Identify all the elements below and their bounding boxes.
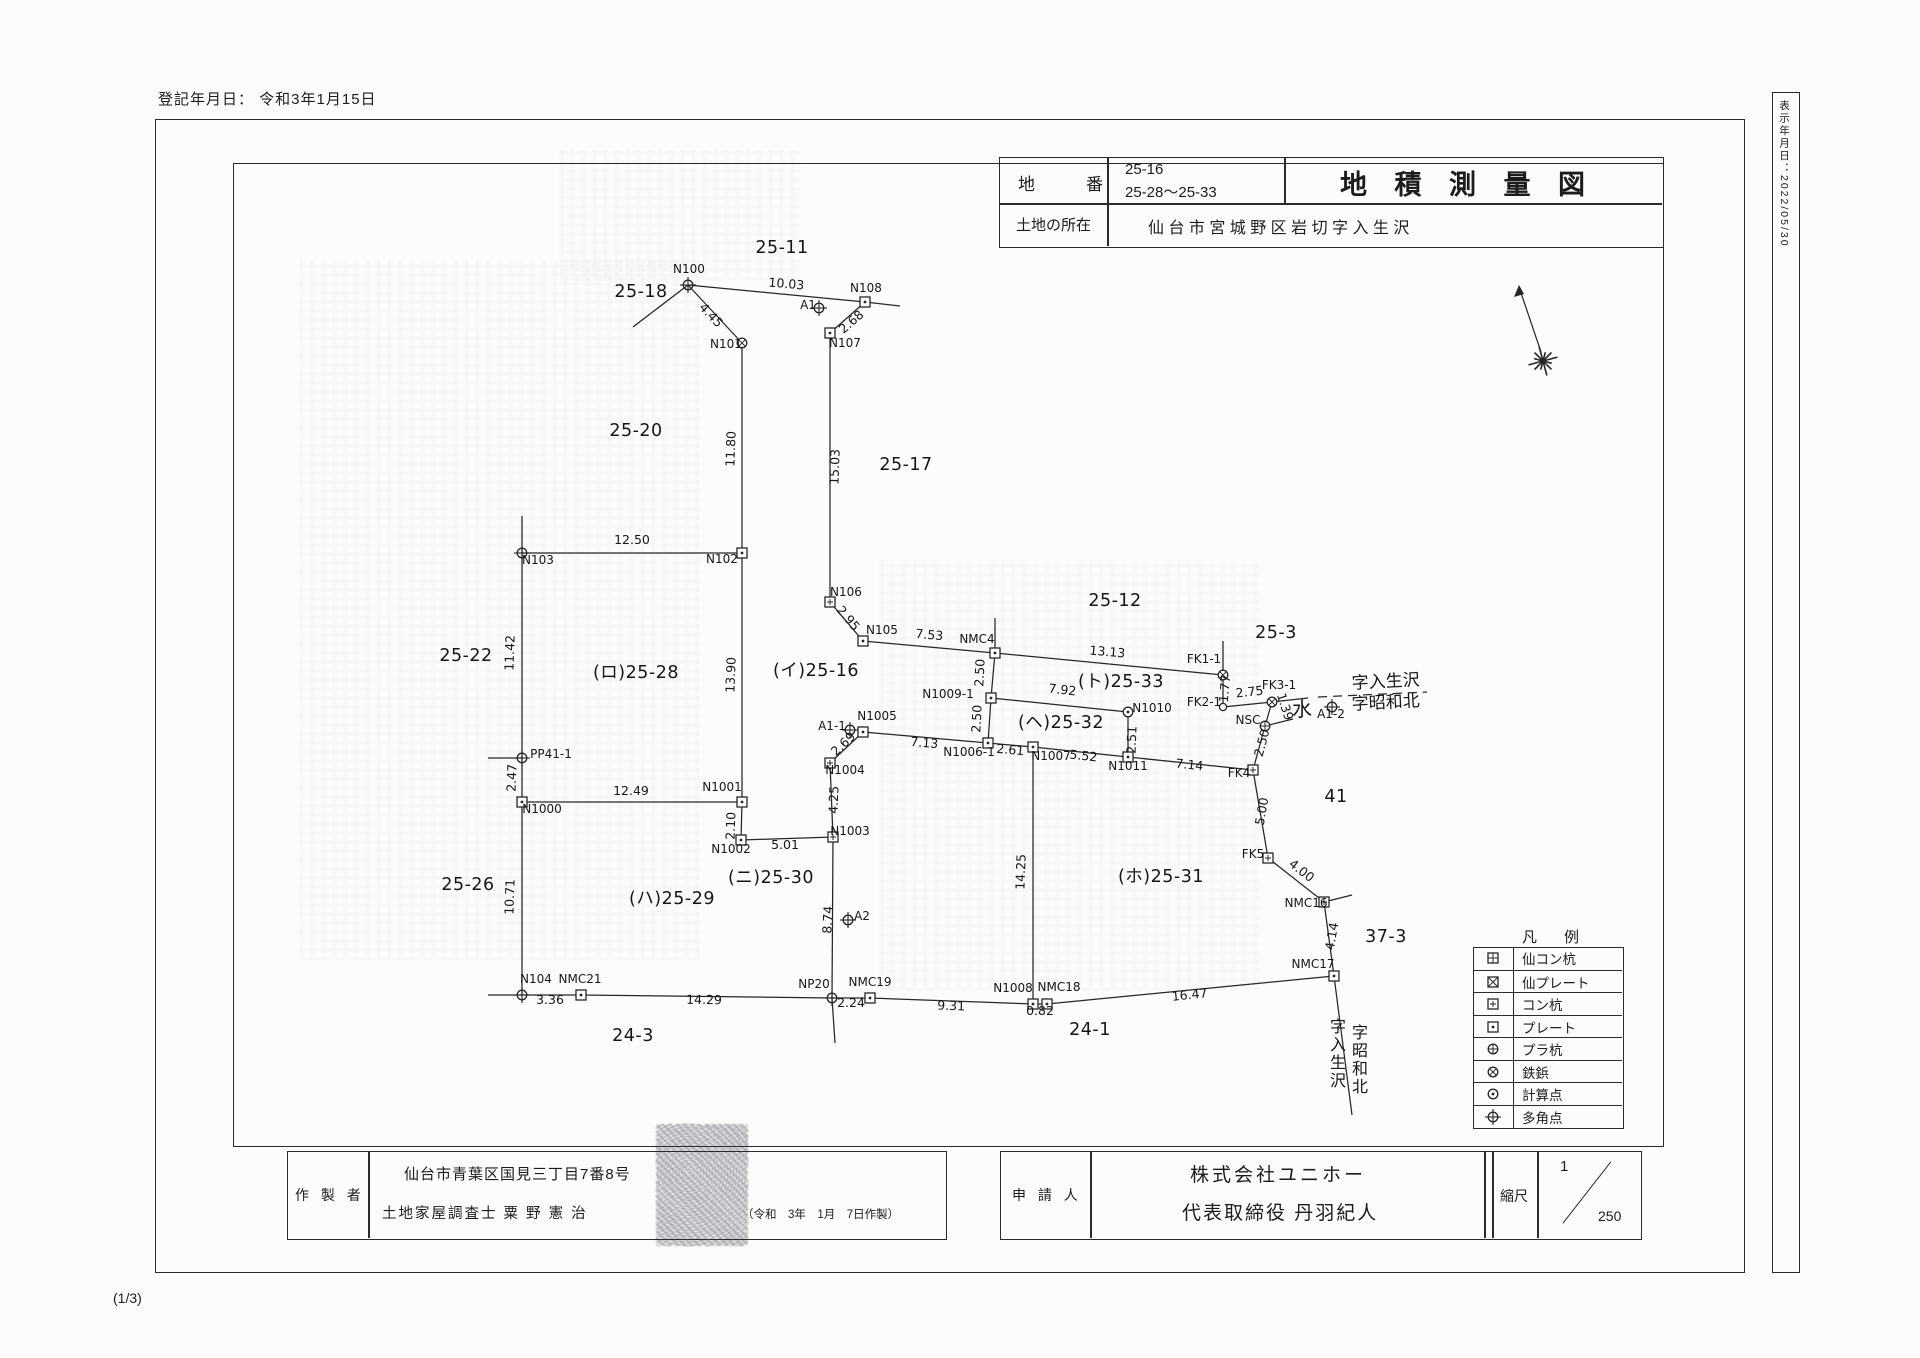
legend-row: コン杭 — [1473, 992, 1622, 1016]
measurement-label: 11.42 — [501, 635, 517, 671]
vertical-area-name-label: 生 — [1330, 1054, 1346, 1072]
measurement-label: 12.50 — [614, 532, 650, 547]
legend-symbol-sq-plus-icon — [1473, 993, 1513, 1015]
legend-row: 多角点 — [1473, 1105, 1622, 1129]
legend-symbol-circle-dot-icon — [1473, 1083, 1513, 1105]
parcel-number-label: (ニ)25-30 — [728, 868, 814, 888]
parcel-number-label: 25-26 — [441, 875, 494, 895]
point-label: NMC17 — [1292, 957, 1335, 971]
point-label: NSC — [1236, 713, 1261, 727]
survey-point-NMC19 — [865, 993, 875, 1003]
legend-symbol-circle-x-icon — [1473, 1061, 1513, 1083]
survey-point-N1009-1 — [986, 693, 996, 703]
point-label: N1001 — [702, 780, 742, 794]
point-label: N1009-1 — [922, 687, 973, 701]
point-label: N103 — [522, 553, 554, 567]
measurement-label: 14.25 — [1012, 854, 1028, 890]
point-label: FK4 — [1228, 766, 1250, 780]
legend-label: 鉄鋲 — [1513, 1061, 1622, 1084]
north-arrow-icon — [1514, 285, 1557, 375]
measurement-label: 2.10 — [723, 812, 739, 840]
parcel-number-label: 25-11 — [755, 238, 808, 258]
parcel-number-label: (ヘ)25-32 — [1018, 713, 1104, 733]
point-label: FK3-1 — [1262, 678, 1296, 692]
measurement-label: 2.68 — [836, 307, 867, 337]
legend-items: 仙コン杭仙プレートコン杭プレートプラ杭鉄鋲計算点多角点 — [1473, 947, 1622, 1127]
survey-point-NMC17 — [1329, 971, 1339, 981]
survey-point-PP41-1 — [514, 750, 530, 766]
measurement-label: 2.61 — [996, 741, 1025, 758]
legend-title: 凡 例 — [1522, 926, 1585, 947]
area-name-label: 字入生沢 — [1351, 670, 1420, 693]
point-label: N1000 — [522, 802, 562, 816]
legend-symbol-sq-x-icon — [1473, 971, 1513, 993]
maker-address: 仙台市青葉区国見三丁目7番8号 — [404, 1163, 631, 1184]
measurement-label: 4.45 — [696, 300, 726, 331]
measurement-label: 10.71 — [501, 879, 517, 915]
point-label: N1006-1 — [943, 745, 994, 759]
maker-label: 作 製 者 — [295, 1185, 365, 1205]
measurement-label: 2.95 — [834, 603, 863, 634]
survey-point-N102 — [737, 548, 747, 558]
parcel-number-label: (ロ)25-28 — [593, 663, 679, 683]
survey-point-NMC21 — [576, 990, 586, 1000]
measurement-label: 4.00 — [1286, 856, 1317, 885]
vertical-area-name-label: 和 — [1352, 1060, 1368, 1078]
point-label: N106 — [830, 585, 862, 599]
legend-row: 鉄鋲 — [1473, 1060, 1622, 1084]
parcel-number-label: 25-12 — [1088, 591, 1141, 611]
measurement-label: 2.51 — [1124, 726, 1140, 754]
measurement-label: 7.14 — [1175, 756, 1204, 774]
point-label: NMC18 — [1038, 980, 1081, 994]
measurement-label: 2.24 — [837, 995, 865, 1010]
boundary-segment — [741, 802, 742, 840]
legend-symbol-circle-cross — [1485, 1109, 1501, 1125]
point-label: N101 — [710, 337, 742, 351]
point-label: A1 — [800, 298, 816, 312]
survey-point-N104 — [514, 987, 530, 1003]
measurement-label: 8.74 — [819, 905, 835, 934]
vertical-area-name-label: 昭 — [1352, 1043, 1368, 1060]
point-label: N1004 — [825, 763, 865, 777]
point-label: PP41-1 — [530, 747, 572, 761]
point-label: N102 — [706, 552, 738, 566]
point-label: A1-1 — [818, 719, 846, 733]
maker-surveyor: 土地家屋調査士 粟 野 憲 治 — [382, 1202, 588, 1223]
measurement-label: 5.00 — [1252, 796, 1272, 826]
point-label: N1007 — [1031, 749, 1071, 763]
legend-row: プラ杭 — [1473, 1037, 1622, 1061]
measurement-label: 5.52 — [1069, 747, 1098, 765]
legend-symbol-circle-x — [1488, 1067, 1498, 1077]
measurement-label: 7.92 — [1048, 681, 1077, 699]
point-label: N1011 — [1108, 759, 1148, 773]
point-label: N1008 — [993, 981, 1033, 995]
point-label: NMC19 — [849, 975, 892, 989]
survey-point-FK5 — [1263, 853, 1273, 863]
legend-symbol-sq-plus — [1488, 999, 1498, 1009]
point-label: N1010 — [1132, 701, 1172, 715]
measurement-label: 13.13 — [1089, 642, 1126, 660]
point-label: N105 — [866, 623, 898, 637]
parcel-number-label: (ハ)25-29 — [629, 889, 715, 909]
measurement-label: 14.29 — [686, 992, 722, 1008]
scale-denominator: 250 — [1598, 1208, 1621, 1224]
parcel-number-label: 24-1 — [1069, 1020, 1111, 1040]
sheet-indicator: (1/3) — [113, 1290, 142, 1306]
vertical-area-name-label: 字 — [1330, 1018, 1346, 1036]
legend-label: プレート — [1513, 1016, 1622, 1039]
legend-symbol-circle-plus-icon — [1473, 1038, 1513, 1060]
point-label: N100 — [673, 262, 705, 276]
survey-point-N1001 — [737, 797, 747, 807]
vertical-area-name-label: 字 — [1352, 1024, 1368, 1042]
parcel-number-label: 25-22 — [439, 646, 492, 666]
legend-label: 多角点 — [1513, 1106, 1622, 1129]
point-label: N104 — [520, 972, 552, 986]
legend-label: コン杭 — [1513, 993, 1622, 1016]
measurement-label: 4.14 — [1322, 921, 1342, 951]
area-name-label: 字昭和北 — [1351, 691, 1420, 714]
point-label: N108 — [850, 281, 882, 295]
applicant-label: 申 請 人 — [1012, 1185, 1082, 1205]
measurement-label: 12.49 — [613, 783, 649, 798]
legend-label: 仙プレート — [1513, 971, 1622, 994]
scanned-survey-document: 登記年月日： 令和3年1月15日 表示年月日：2022/05/30 地 番 25… — [0, 0, 1920, 1358]
measurement-label: 2.75 — [1235, 683, 1264, 701]
boundary-segment — [991, 653, 995, 698]
maker-date-note: （令和 3年 1月 7日作製） — [742, 1206, 899, 1222]
legend-symbol-circle-plus — [1488, 1044, 1498, 1054]
measurement-label: 2.50 — [1251, 727, 1273, 758]
vertical-area-name-label: 沢 — [1330, 1072, 1346, 1090]
applicant-company: 株式会社ユニホー — [1190, 1160, 1366, 1187]
survey-point-N105 — [858, 636, 868, 646]
point-label: FK5 — [1242, 847, 1264, 861]
vertical-area-name-label: 入 — [1330, 1037, 1346, 1054]
legend-row: 仙プレート — [1473, 970, 1622, 994]
survey-point-NMC4 — [990, 648, 1000, 658]
area-name-label: 水 — [1292, 698, 1312, 721]
measurement-label: 2.47 — [504, 764, 520, 792]
legend-symbol-sq-cross — [1488, 953, 1498, 963]
measurement-label: 2.50 — [968, 704, 984, 733]
legend-symbol-circle-cross-icon — [1473, 1106, 1513, 1128]
legend-label: プラ杭 — [1513, 1038, 1622, 1061]
legend-label: 仙コン杭 — [1513, 947, 1622, 970]
scale-label: 縮尺 — [1500, 1186, 1528, 1206]
parcel-number-label: 37-3 — [1365, 927, 1407, 947]
point-label: A1-2 — [1317, 707, 1345, 721]
measurement-label: 9.31 — [937, 998, 965, 1014]
parcel-number-label: (ホ)25-31 — [1118, 867, 1204, 887]
survey-point-N108 — [860, 297, 870, 307]
legend-label: 計算点 — [1513, 1083, 1622, 1106]
survey-point-N1005 — [858, 727, 868, 737]
measurement-label: 13.90 — [722, 657, 738, 693]
point-label: FK1-1 — [1187, 652, 1221, 666]
measurement-label: 5.01 — [771, 837, 799, 852]
boundary-segment — [991, 698, 1128, 712]
applicant-representative: 代表取締役 丹羽紀人 — [1182, 1198, 1378, 1225]
measurement-label: 15.03 — [826, 449, 842, 485]
measurement-label: 4.25 — [826, 786, 842, 814]
parcel-number-label: 25-20 — [609, 421, 662, 441]
measurement-label: 11.80 — [722, 431, 738, 467]
parcel-number-label: 25-3 — [1255, 623, 1297, 643]
legend-symbol-sq-dot-icon — [1473, 1016, 1513, 1038]
parcel-number-label: 25-18 — [614, 282, 667, 302]
measurement-label: 2.50 — [971, 658, 987, 687]
parcel-number-label: 25-17 — [879, 455, 932, 475]
legend-symbol-sq-cross-icon — [1473, 947, 1513, 969]
parcel-number-label: 24-3 — [612, 1026, 654, 1046]
point-label: NMC21 — [559, 972, 602, 986]
point-label: NP20 — [798, 977, 829, 991]
parcel-number-label: 41 — [1324, 787, 1347, 807]
legend-row: 計算点 — [1473, 1082, 1622, 1106]
boundary-segment — [988, 698, 991, 743]
measurement-label: 16.47 — [1171, 985, 1208, 1004]
point-label: N1005 — [857, 709, 897, 723]
measurement-label: 1.77 — [1216, 674, 1233, 703]
legend-symbol-sq-x — [1488, 977, 1498, 987]
parcel-number-label: (ト)25-33 — [1078, 672, 1164, 692]
point-label: A2 — [854, 909, 870, 923]
vertical-area-name-label: 北 — [1352, 1078, 1368, 1096]
legend-row: 仙コン杭 — [1473, 947, 1622, 970]
parcel-number-label: (イ)25-16 — [773, 661, 859, 681]
measurement-label: 7.53 — [915, 626, 944, 643]
point-label: N107 — [829, 336, 861, 350]
measurement-label: 3.36 — [536, 992, 564, 1007]
measurement-label: 0.82 — [1026, 1003, 1054, 1018]
point-label: NMC16 — [1285, 896, 1328, 910]
point-label: N1002 — [711, 842, 751, 856]
point-label: NMC4 — [959, 632, 994, 646]
legend-symbol-circle-dot — [1488, 1089, 1498, 1099]
surveyor-seal-stamp — [656, 1124, 748, 1246]
scale-numerator: 1 — [1560, 1158, 1568, 1175]
legend-symbol-sq-dot — [1488, 1022, 1498, 1032]
point-label: N1003 — [830, 824, 870, 838]
legend-row: プレート — [1473, 1015, 1622, 1039]
measurement-label: 10.03 — [768, 274, 805, 292]
measurement-label: 7.13 — [910, 734, 939, 751]
